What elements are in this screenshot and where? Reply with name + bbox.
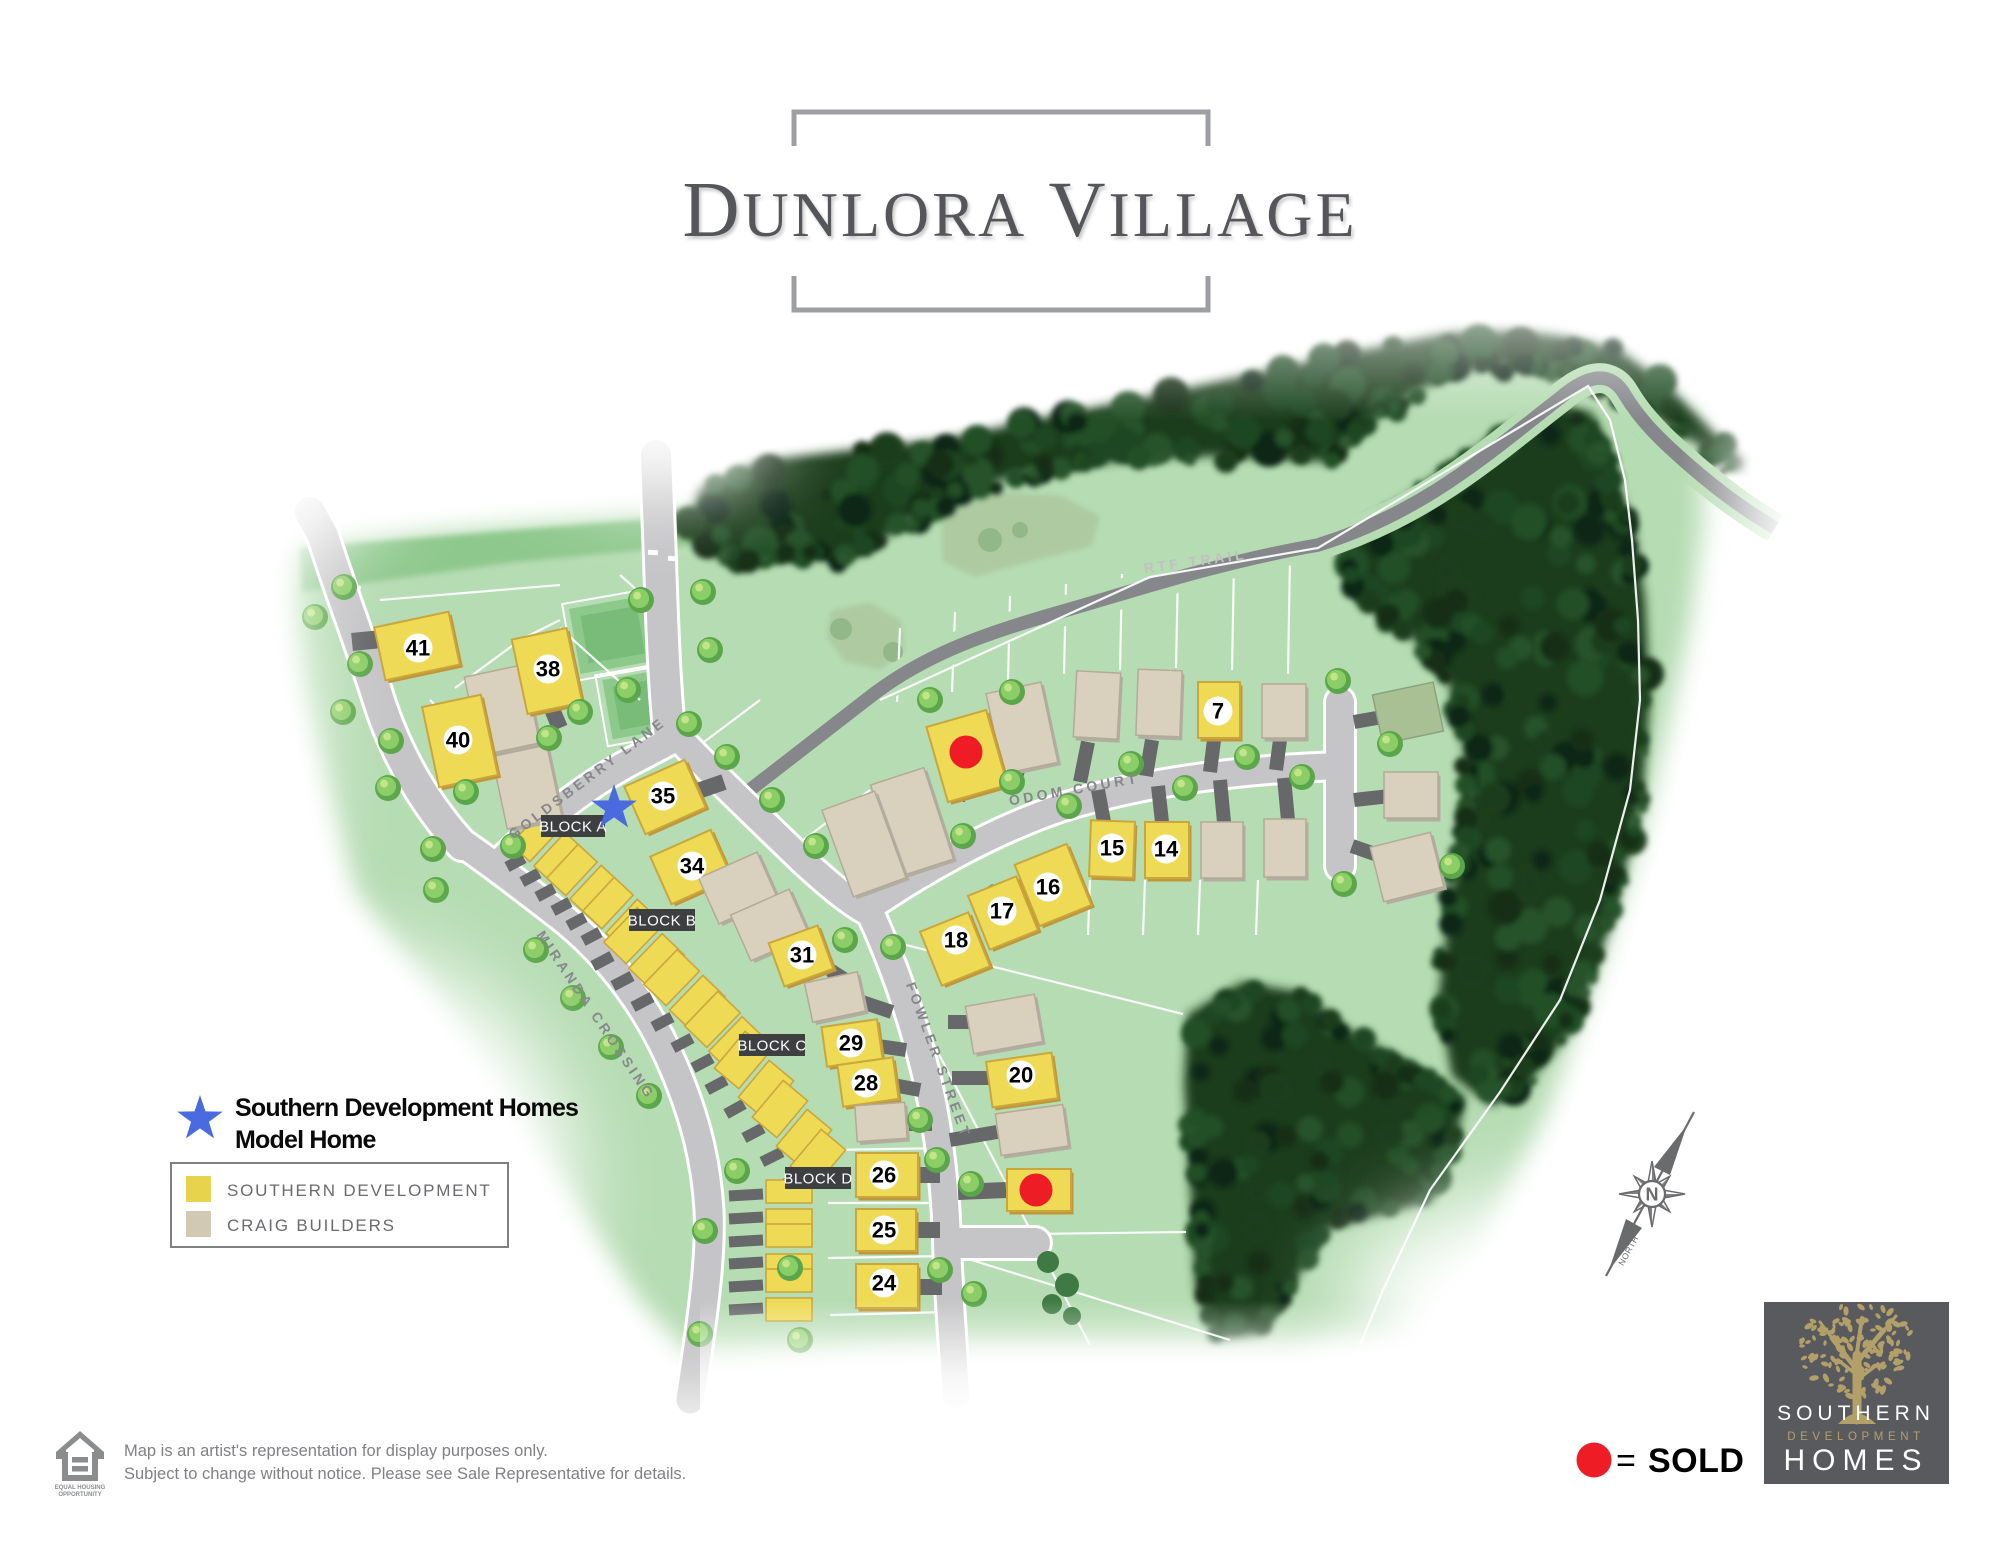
svg-text:DUNLORA VILLAGE: DUNLORA VILLAGE: [682, 167, 1357, 254]
svg-text:26: 26: [872, 1163, 896, 1188]
svg-text:25: 25: [872, 1218, 896, 1243]
svg-text:HOMES: HOMES: [1783, 1444, 1928, 1477]
svg-text:SOUTHERN DEVELOPMENT: SOUTHERN DEVELOPMENT: [227, 1181, 492, 1200]
svg-text:15: 15: [1100, 836, 1124, 861]
svg-text:Subject to change without noti: Subject to change without notice. Please…: [124, 1465, 686, 1483]
svg-text:Model Home: Model Home: [235, 1126, 377, 1154]
svg-text:7: 7: [1212, 699, 1224, 724]
svg-text:31: 31: [790, 943, 814, 968]
svg-text:SOLD: SOLD: [1648, 1442, 1744, 1480]
svg-text:24: 24: [872, 1271, 897, 1296]
svg-text:38: 38: [536, 657, 560, 682]
svg-text:35: 35: [651, 784, 675, 809]
svg-text:OPPORTUNITY: OPPORTUNITY: [58, 1492, 101, 1498]
svg-text:EQUAL HOUSING: EQUAL HOUSING: [55, 1485, 106, 1491]
svg-text:14: 14: [1154, 837, 1179, 862]
svg-text:17: 17: [990, 899, 1014, 924]
svg-text:28: 28: [854, 1071, 878, 1096]
svg-text:BLOCK C: BLOCK C: [737, 1038, 806, 1055]
svg-text:40: 40: [446, 728, 470, 753]
svg-text:=: =: [1616, 1442, 1636, 1480]
svg-text:18: 18: [944, 928, 968, 953]
svg-text:BLOCK B: BLOCK B: [628, 913, 697, 930]
svg-text:34: 34: [680, 854, 705, 879]
svg-text:Map is an artist's representat: Map is an artist's representation for di…: [124, 1442, 548, 1460]
svg-text:BLOCK A: BLOCK A: [539, 819, 607, 836]
svg-text:16: 16: [1036, 875, 1060, 900]
svg-text:BLOCK D: BLOCK D: [783, 1171, 852, 1188]
svg-text:CRAIG BUILDERS: CRAIG BUILDERS: [227, 1216, 396, 1235]
svg-text:41: 41: [406, 636, 430, 661]
svg-text:N: N: [1646, 1185, 1659, 1205]
svg-text:Southern Development Homes: Southern Development Homes: [235, 1094, 578, 1122]
svg-text:29: 29: [839, 1031, 863, 1056]
svg-text:SOUTHERN: SOUTHERN: [1777, 1402, 1935, 1425]
svg-text:DEVELOPMENT: DEVELOPMENT: [1787, 1431, 1925, 1443]
svg-text:20: 20: [1009, 1063, 1033, 1088]
